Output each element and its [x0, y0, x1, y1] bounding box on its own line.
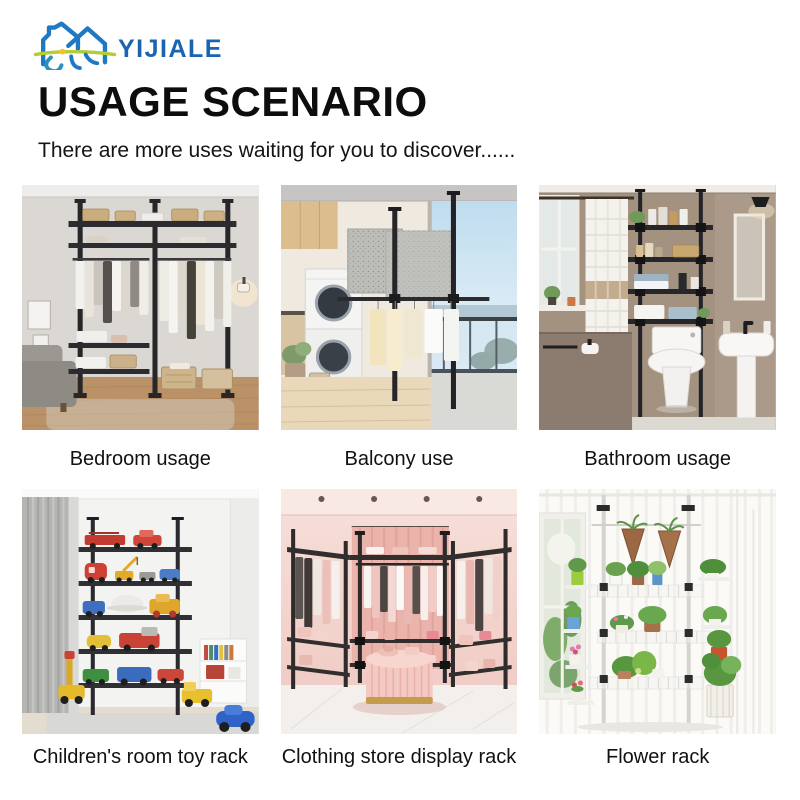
card-balcony-use: Balcony use — [281, 185, 518, 489]
brand-logo: YIJIALE — [28, 14, 800, 70]
balcony-drying-rack-photo — [281, 185, 518, 430]
page-title: USAGE SCENARIO — [38, 78, 800, 126]
caption-children-room-toy-rack: Children's room toy rack — [22, 734, 259, 782]
page-subtitle: There are more uses waiting for you to d… — [38, 139, 800, 163]
bedroom-clothes-rack-photo — [22, 185, 259, 430]
card-clothing-store-display-rack: Clothing store display rack — [281, 489, 518, 782]
house-logo-icon — [28, 14, 124, 70]
flower-rack-photo — [539, 489, 776, 734]
caption-balcony-use: Balcony use — [281, 430, 518, 489]
card-bedroom-usage: Bedroom usage — [22, 185, 259, 489]
brand-name: YIJIALE — [118, 35, 223, 64]
clothing-store-rack-photo — [281, 489, 518, 734]
card-children-room-toy-rack: Children's room toy rack — [22, 489, 259, 782]
card-flower-rack: Flower rack — [539, 489, 776, 782]
toy-rack-photo — [22, 489, 259, 734]
caption-clothing-store-display-rack: Clothing store display rack — [281, 734, 518, 782]
caption-flower-rack: Flower rack — [539, 734, 776, 782]
bathroom-over-toilet-shelf-photo — [539, 185, 776, 430]
caption-bathroom-usage: Bathroom usage — [539, 430, 776, 489]
card-bathroom-usage: Bathroom usage — [539, 185, 776, 489]
usage-grid: Bedroom usage — [22, 185, 776, 782]
usage-scenario-page: YIJIALE USAGE SCENARIO There are more us… — [0, 14, 800, 800]
caption-bedroom-usage: Bedroom usage — [22, 430, 259, 489]
